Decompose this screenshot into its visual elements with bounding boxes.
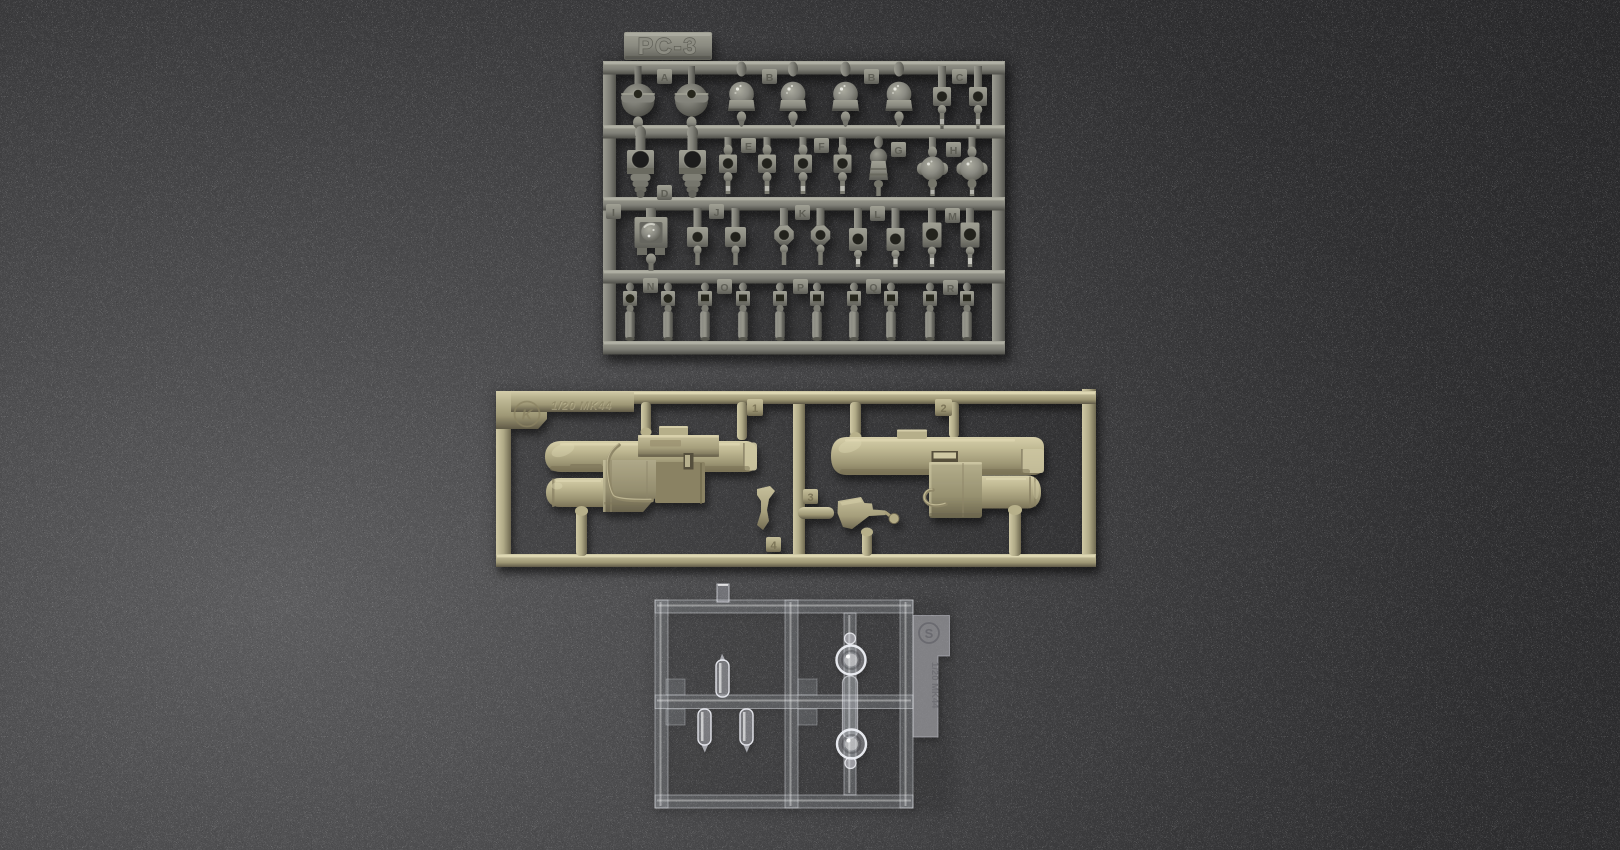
svg-text:G: G bbox=[894, 145, 902, 157]
svg-text:N: N bbox=[647, 281, 655, 293]
svg-text:D: D bbox=[661, 188, 669, 200]
svg-text:J: J bbox=[714, 207, 720, 219]
svg-text:I: I bbox=[612, 207, 615, 219]
svg-text:M: M bbox=[948, 211, 957, 223]
svg-text:C: C bbox=[956, 72, 964, 84]
svg-text:L: L bbox=[874, 209, 881, 221]
svg-text:1/20 MK44: 1/20 MK44 bbox=[929, 662, 940, 709]
svg-text:2: 2 bbox=[940, 403, 946, 415]
svg-text:B: B bbox=[766, 72, 774, 84]
svg-text:Q: Q bbox=[869, 282, 877, 294]
svg-text:B: B bbox=[868, 72, 876, 84]
svg-text:A: A bbox=[661, 72, 669, 84]
svg-text:S: S bbox=[925, 626, 934, 641]
svg-text:1/20 MK44: 1/20 MK44 bbox=[551, 400, 612, 412]
svg-text:F: F bbox=[818, 141, 825, 153]
svg-text:K: K bbox=[522, 407, 534, 424]
svg-text:PC-3: PC-3 bbox=[638, 33, 698, 59]
svg-text:3: 3 bbox=[807, 492, 813, 504]
svg-text:K: K bbox=[799, 208, 807, 220]
svg-text:4: 4 bbox=[770, 540, 777, 552]
svg-text:R: R bbox=[947, 283, 955, 295]
svg-text:P: P bbox=[797, 282, 804, 294]
svg-text:1: 1 bbox=[752, 403, 758, 415]
svg-text:E: E bbox=[745, 141, 752, 153]
svg-text:O: O bbox=[720, 282, 728, 294]
svg-text:H: H bbox=[950, 145, 958, 157]
